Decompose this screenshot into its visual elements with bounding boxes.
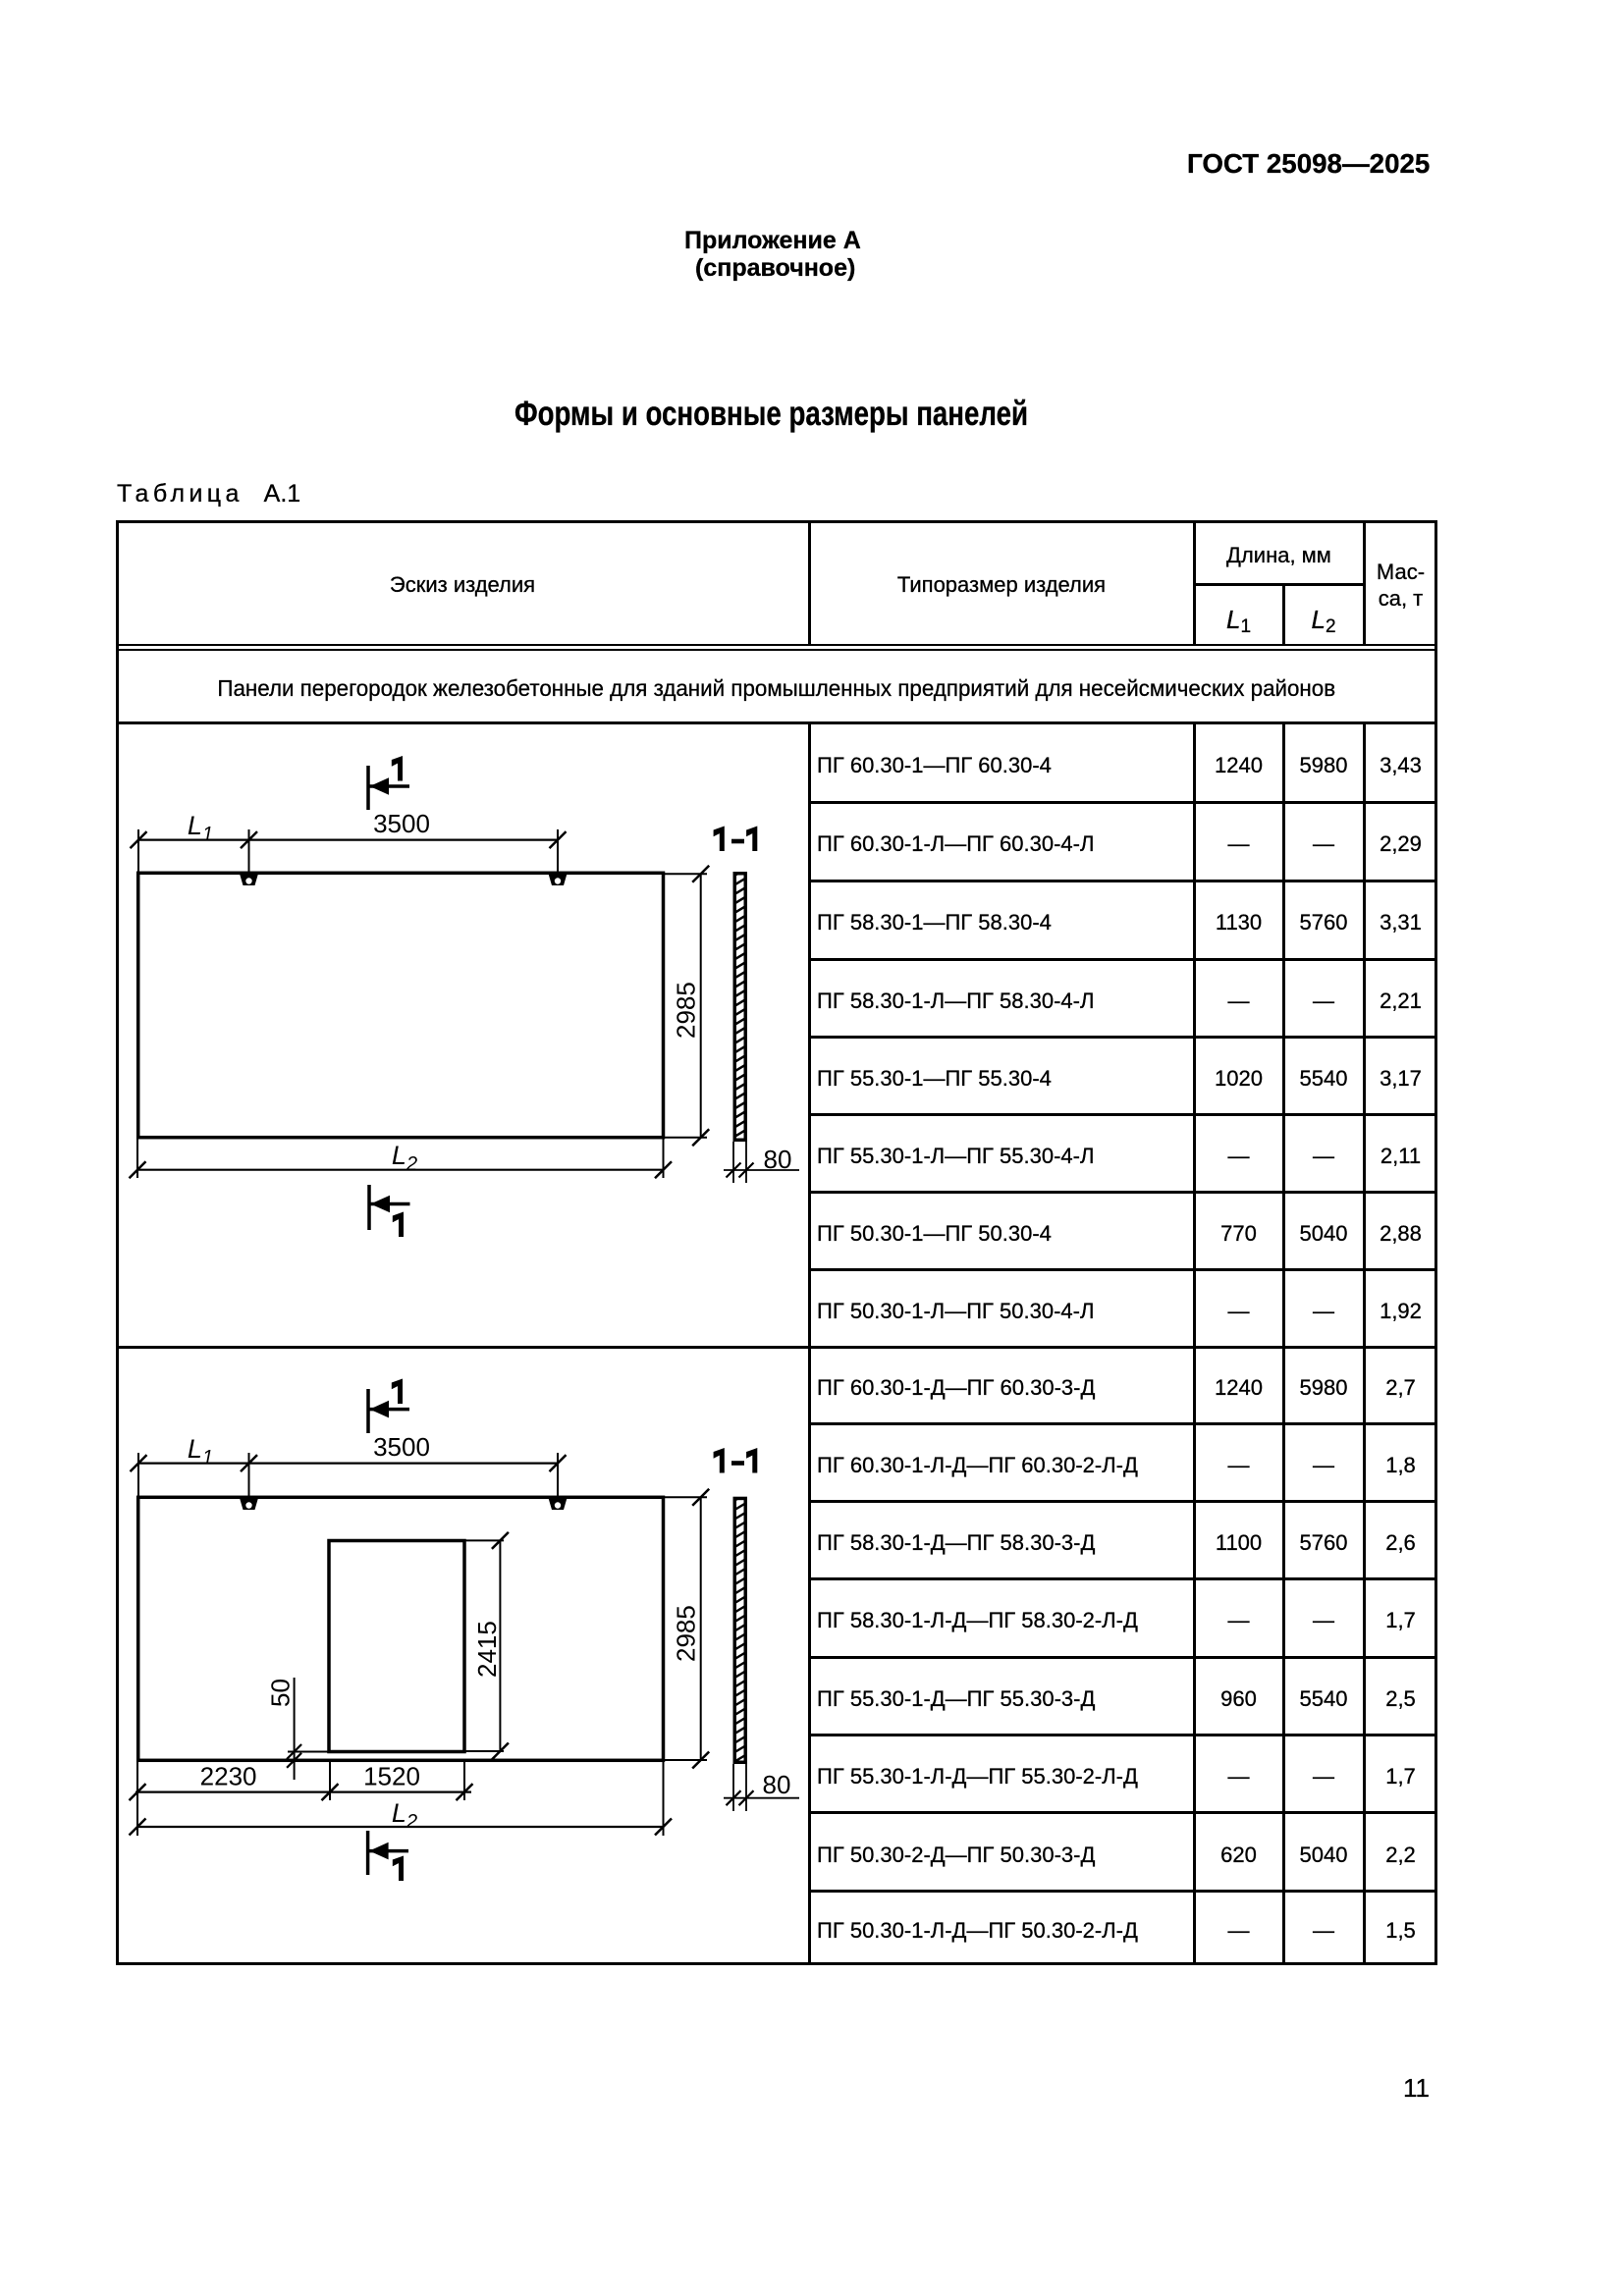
svg-text:L2: L2 — [392, 1141, 417, 1175]
svg-text:80: 80 — [763, 1770, 791, 1799]
svg-text:50: 50 — [266, 1679, 296, 1707]
svg-text:80: 80 — [764, 1145, 792, 1174]
svg-text:L1: L1 — [188, 1434, 213, 1468]
svg-text:3500: 3500 — [373, 809, 430, 838]
svg-text:2230: 2230 — [200, 1762, 257, 1791]
svg-text:L2: L2 — [392, 1798, 417, 1833]
svg-text:L1: L1 — [188, 811, 213, 845]
svg-text:3500: 3500 — [373, 1432, 430, 1462]
svg-text:2985: 2985 — [672, 1605, 701, 1662]
svg-text:1520: 1520 — [363, 1762, 420, 1791]
svg-text:2985: 2985 — [672, 982, 701, 1039]
svg-text:2415: 2415 — [472, 1621, 502, 1678]
